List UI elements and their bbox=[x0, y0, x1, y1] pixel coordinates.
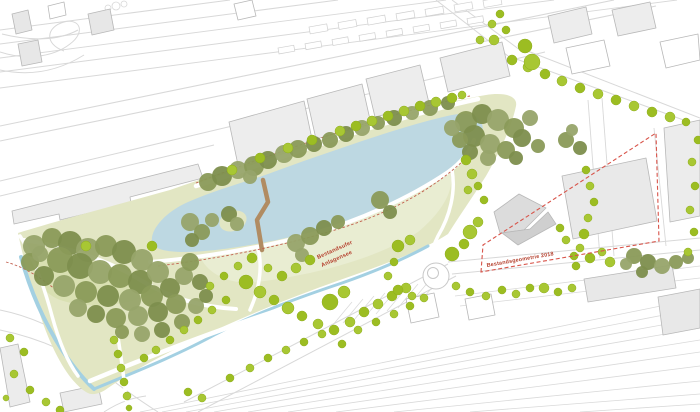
tree bbox=[282, 302, 294, 314]
tree bbox=[556, 224, 564, 232]
tree bbox=[126, 405, 132, 411]
tree bbox=[20, 348, 28, 356]
tree-olive bbox=[34, 266, 54, 286]
platform bbox=[278, 45, 295, 54]
tree bbox=[473, 217, 483, 227]
tree bbox=[152, 346, 160, 354]
tree bbox=[198, 394, 206, 402]
tree-olive bbox=[148, 302, 168, 322]
tree bbox=[605, 257, 615, 267]
tree bbox=[390, 258, 398, 266]
tree bbox=[405, 235, 415, 245]
tree bbox=[576, 244, 584, 252]
platform bbox=[413, 24, 430, 33]
tree-olive bbox=[32, 246, 48, 262]
building bbox=[566, 40, 610, 74]
tree bbox=[264, 264, 272, 272]
tree bbox=[110, 336, 118, 344]
tree bbox=[81, 241, 91, 251]
tree bbox=[234, 262, 242, 270]
tree bbox=[208, 306, 216, 314]
tree-olive bbox=[128, 306, 148, 326]
tree bbox=[582, 166, 590, 174]
platform bbox=[440, 20, 457, 29]
tree bbox=[297, 311, 307, 321]
road bbox=[2, 30, 78, 39]
building bbox=[48, 2, 66, 19]
tree bbox=[123, 392, 131, 400]
tree bbox=[482, 292, 490, 300]
tree bbox=[269, 295, 279, 305]
tree bbox=[461, 155, 471, 165]
tree bbox=[338, 340, 346, 348]
tree bbox=[390, 310, 398, 318]
tree-olive bbox=[154, 322, 170, 338]
tree bbox=[114, 350, 122, 358]
tree bbox=[585, 253, 595, 263]
tree bbox=[408, 292, 416, 300]
tree-olive bbox=[181, 253, 199, 271]
platform bbox=[309, 24, 328, 34]
tree bbox=[518, 39, 532, 53]
tree-olive bbox=[87, 305, 105, 323]
tree-olive bbox=[53, 275, 75, 297]
tree-olive bbox=[115, 325, 129, 339]
tree bbox=[345, 317, 355, 327]
tree bbox=[584, 214, 592, 222]
tree-olive bbox=[106, 308, 126, 328]
tree bbox=[56, 406, 64, 412]
tree bbox=[463, 225, 477, 239]
tree bbox=[283, 143, 293, 153]
tree bbox=[351, 121, 361, 131]
tree bbox=[476, 36, 484, 44]
tree-olive bbox=[205, 213, 219, 227]
building bbox=[465, 294, 495, 320]
tree bbox=[458, 91, 466, 99]
tree bbox=[140, 354, 148, 362]
tree bbox=[120, 378, 128, 386]
tree-olive bbox=[620, 258, 632, 270]
tree bbox=[354, 326, 362, 334]
tree bbox=[590, 198, 598, 206]
tree bbox=[452, 282, 460, 290]
roundabout-inner bbox=[428, 268, 439, 279]
tree bbox=[420, 294, 428, 302]
tree bbox=[6, 334, 14, 342]
road bbox=[0, 0, 446, 58]
platform bbox=[467, 16, 484, 25]
tree bbox=[466, 288, 474, 296]
tree bbox=[431, 97, 441, 107]
tree bbox=[318, 330, 326, 338]
building bbox=[562, 158, 657, 239]
tree bbox=[194, 316, 202, 324]
tree bbox=[335, 126, 345, 136]
tree-olive bbox=[243, 170, 257, 184]
tree bbox=[322, 294, 338, 310]
tree bbox=[540, 69, 550, 79]
tree bbox=[498, 286, 506, 294]
tree bbox=[147, 241, 157, 251]
tree bbox=[593, 89, 603, 99]
tree-olive bbox=[480, 150, 496, 166]
tree bbox=[184, 388, 192, 396]
tree-olive bbox=[513, 129, 531, 147]
tree-olive bbox=[383, 205, 397, 219]
tree bbox=[300, 338, 308, 346]
platform bbox=[396, 11, 415, 21]
tree bbox=[406, 302, 414, 310]
tree bbox=[557, 76, 567, 86]
tree bbox=[247, 253, 257, 263]
roundabout bbox=[423, 263, 449, 289]
tree bbox=[562, 236, 570, 244]
building bbox=[660, 34, 700, 68]
tree bbox=[3, 395, 9, 401]
tree-olive bbox=[88, 260, 112, 284]
tree bbox=[277, 271, 287, 281]
tree bbox=[496, 10, 504, 18]
tree bbox=[246, 364, 254, 372]
tree bbox=[688, 158, 696, 166]
tree bbox=[227, 165, 237, 175]
tree bbox=[467, 169, 477, 179]
tree bbox=[447, 93, 457, 103]
site-plan-map: BestandsuferAnlagenseeBestandsgeometrie … bbox=[0, 0, 700, 412]
tree-olive bbox=[331, 215, 345, 229]
building bbox=[658, 289, 700, 335]
tree bbox=[239, 275, 253, 289]
tree bbox=[480, 196, 488, 204]
building bbox=[664, 120, 700, 222]
tree bbox=[373, 299, 383, 309]
tree-olive bbox=[97, 285, 119, 307]
tree bbox=[684, 248, 692, 256]
building bbox=[18, 40, 42, 66]
tree-olive bbox=[134, 326, 150, 342]
plan-canvas: BestandsuferAnlagenseeBestandsgeometrie … bbox=[0, 0, 700, 412]
tree bbox=[226, 374, 234, 382]
tree bbox=[524, 54, 540, 70]
tree bbox=[686, 206, 694, 214]
tree-olive bbox=[636, 266, 648, 278]
tree bbox=[445, 247, 459, 261]
platform bbox=[338, 19, 357, 29]
tree bbox=[474, 182, 482, 190]
building bbox=[612, 2, 656, 36]
building bbox=[88, 9, 114, 35]
tree bbox=[291, 263, 301, 273]
tree-olive bbox=[444, 120, 460, 136]
rail-track bbox=[580, 404, 700, 412]
tree bbox=[305, 255, 315, 265]
tree bbox=[502, 26, 510, 34]
tree-olive bbox=[192, 274, 208, 290]
tree bbox=[338, 286, 350, 298]
tree bbox=[26, 386, 34, 394]
tree bbox=[399, 106, 409, 116]
tree bbox=[180, 326, 188, 334]
tree bbox=[393, 285, 403, 295]
road-circle bbox=[112, 2, 120, 10]
tree bbox=[579, 229, 589, 239]
platform bbox=[359, 33, 376, 42]
tree bbox=[117, 364, 125, 372]
tree bbox=[383, 111, 393, 121]
tree bbox=[488, 20, 496, 28]
tree bbox=[647, 107, 657, 117]
tree bbox=[384, 272, 392, 280]
tree bbox=[682, 118, 690, 126]
map-label: Bestandsgeometrie 2018 bbox=[486, 251, 554, 269]
tree-olive bbox=[654, 258, 670, 274]
tree bbox=[611, 95, 621, 105]
tree bbox=[282, 346, 290, 354]
tree bbox=[489, 35, 499, 45]
road bbox=[654, 128, 666, 246]
tree bbox=[575, 83, 585, 93]
tree bbox=[554, 288, 562, 296]
tree bbox=[512, 290, 520, 298]
tree bbox=[598, 248, 606, 256]
tree bbox=[255, 153, 265, 163]
building bbox=[234, 0, 256, 20]
tree-olive bbox=[669, 255, 683, 269]
tree bbox=[568, 284, 576, 292]
tree bbox=[206, 282, 214, 290]
platform bbox=[483, 0, 502, 7]
tree bbox=[586, 182, 594, 190]
tree bbox=[222, 296, 230, 304]
tree-olive bbox=[322, 132, 338, 148]
tree bbox=[665, 112, 675, 122]
tree bbox=[629, 101, 639, 111]
tree bbox=[459, 239, 469, 249]
tree bbox=[464, 186, 472, 194]
tree bbox=[264, 354, 272, 362]
tree bbox=[367, 116, 377, 126]
tree bbox=[372, 318, 380, 326]
tree bbox=[220, 272, 228, 280]
tree bbox=[690, 228, 698, 236]
tree-olive bbox=[316, 220, 332, 236]
tree bbox=[507, 55, 517, 65]
platform bbox=[367, 15, 386, 25]
tree bbox=[42, 398, 50, 406]
tree bbox=[307, 135, 317, 145]
tree bbox=[166, 336, 174, 344]
tree bbox=[526, 284, 534, 292]
tree-olive bbox=[166, 294, 186, 314]
tree bbox=[10, 370, 18, 378]
tree bbox=[691, 182, 699, 190]
building bbox=[12, 10, 32, 34]
building bbox=[440, 42, 510, 92]
tree-olive bbox=[566, 124, 578, 136]
tree bbox=[329, 325, 339, 335]
tree-olive bbox=[509, 151, 523, 165]
tree bbox=[359, 307, 369, 317]
tree-olive bbox=[199, 289, 213, 303]
tree-olive bbox=[573, 141, 587, 155]
tree bbox=[539, 283, 549, 293]
rail-track bbox=[470, 394, 700, 412]
platform bbox=[305, 41, 322, 50]
tree-olive bbox=[185, 233, 199, 247]
tree-olive bbox=[69, 299, 87, 317]
tree-olive bbox=[230, 217, 244, 231]
tree bbox=[415, 101, 425, 111]
tree-olive bbox=[522, 110, 538, 126]
rail-track bbox=[186, 318, 700, 412]
tree-olive bbox=[531, 139, 545, 153]
tree bbox=[392, 240, 404, 252]
road-circle bbox=[121, 1, 127, 7]
tree bbox=[694, 136, 700, 144]
tree bbox=[572, 262, 580, 270]
tree bbox=[254, 286, 266, 298]
tree bbox=[313, 319, 323, 329]
platform bbox=[332, 37, 349, 46]
